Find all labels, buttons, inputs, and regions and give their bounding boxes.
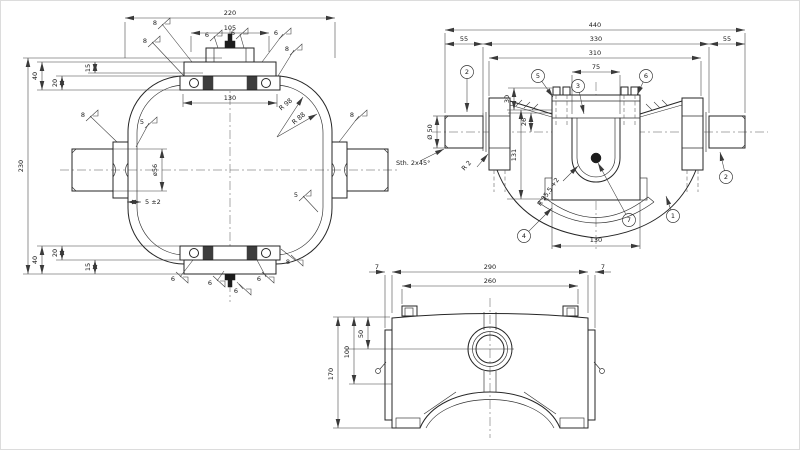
surface-finish-mark: 8 bbox=[350, 110, 367, 121]
finish-value: 8 bbox=[143, 37, 147, 45]
finish-value: 8 bbox=[81, 111, 85, 119]
surface-finish-mark: 6 bbox=[231, 28, 248, 39]
top-bolt-right bbox=[563, 306, 578, 316]
dim-label: R 2 bbox=[460, 159, 473, 172]
surface-finish-mark: 6 bbox=[205, 30, 222, 41]
balloon-number: 6 bbox=[644, 72, 648, 80]
dim-label: R 98 bbox=[277, 97, 294, 113]
balloon-number: 2 bbox=[724, 173, 728, 181]
dim-label: 330 bbox=[590, 35, 602, 43]
dim-label: 30 bbox=[503, 95, 511, 103]
dim-label: 50 bbox=[357, 330, 365, 338]
top-bolt-right-inner bbox=[567, 308, 575, 316]
side-view: 4405533055310751301312630Ø 50Sth. 2x45°R… bbox=[396, 21, 768, 252]
dim-label: 20 bbox=[51, 79, 59, 87]
balloon-number: 1 bbox=[671, 212, 675, 220]
dim-label: Sth. 2x45° bbox=[396, 159, 430, 167]
stud-section bbox=[247, 246, 257, 260]
finish-value: 8 bbox=[286, 258, 290, 266]
stud bbox=[553, 87, 560, 95]
dim-label: 40 bbox=[31, 256, 39, 264]
dim-label: 100 bbox=[343, 346, 351, 358]
finish-leader bbox=[136, 123, 149, 147]
surface-finish-mark: 6 bbox=[274, 28, 291, 39]
front-view: 220105130230401520402015ø565 ±2R 98R 88 … bbox=[17, 9, 400, 302]
finish-leader bbox=[214, 36, 218, 48]
top-bolt-left-inner bbox=[405, 308, 413, 316]
finish-value: 8 bbox=[350, 111, 354, 119]
finish-value: 5 bbox=[140, 118, 144, 126]
finish-leader bbox=[240, 34, 244, 48]
surface-finish-mark: 6 bbox=[208, 276, 225, 287]
side-flange-left bbox=[385, 330, 392, 420]
balloon-number: 5 bbox=[536, 72, 540, 80]
top-bolt-left bbox=[402, 306, 417, 316]
dim-label: 15 bbox=[84, 263, 92, 271]
breather-plug bbox=[225, 41, 235, 48]
bottom-view-anno: 2902607717010050 bbox=[327, 263, 605, 380]
pivot-plug bbox=[591, 153, 601, 163]
dim-label: Ø 50 bbox=[426, 124, 434, 139]
dim-label: 7 bbox=[601, 263, 605, 271]
dim-label: 310 bbox=[589, 49, 601, 57]
stud-section bbox=[247, 76, 257, 90]
finish-value: 5 bbox=[294, 191, 298, 199]
finish-value: 8 bbox=[153, 19, 157, 27]
dim-label: 40 bbox=[31, 72, 39, 80]
finish-value: 6 bbox=[274, 29, 278, 37]
dim-label: 290 bbox=[484, 263, 496, 271]
stud bbox=[563, 87, 570, 95]
surface-finish-mark: 6 bbox=[234, 284, 251, 295]
balloon-callout: 5 bbox=[532, 70, 554, 98]
front-view-labels: 220105130230401520402015ø565 ±2R 98R 88 bbox=[17, 9, 307, 271]
dim-label: 130 bbox=[590, 236, 602, 244]
dim-label: 260 bbox=[484, 277, 496, 285]
bearing-flange-left bbox=[489, 98, 510, 170]
balloon-number: 2 bbox=[465, 68, 469, 76]
dim-label: 55 bbox=[460, 35, 468, 43]
surface-finish-mark: 8 bbox=[285, 44, 302, 55]
dim-label: 75 bbox=[592, 63, 600, 71]
finish-value: 6 bbox=[231, 29, 235, 37]
dim-label: 440 bbox=[589, 21, 601, 29]
surface-finish-mark: 8 bbox=[143, 36, 160, 47]
surface-finish-mark: 5 bbox=[294, 190, 311, 201]
top-cap-flange bbox=[180, 76, 280, 90]
engineering-drawing: 220105130230401520402015ø565 ±2R 98R 88 … bbox=[0, 0, 800, 450]
surface-finish-mark: 8 bbox=[81, 110, 98, 121]
dim-label: 131 bbox=[510, 149, 518, 161]
finish-value: 8 bbox=[285, 45, 289, 53]
saddle-block bbox=[552, 95, 640, 200]
finish-value: 6 bbox=[171, 275, 175, 283]
foot-right bbox=[560, 418, 584, 428]
stud bbox=[621, 87, 628, 95]
balloon-number: 3 bbox=[576, 82, 580, 90]
finish-leader bbox=[152, 42, 184, 76]
dim-label: 130 bbox=[224, 94, 236, 102]
balloon-callout: 2 bbox=[720, 152, 733, 184]
drain-plug bbox=[225, 274, 235, 280]
finish-value: 6 bbox=[205, 31, 209, 39]
dim-label: 230 bbox=[17, 160, 25, 172]
dim-label: 26 bbox=[520, 118, 528, 126]
finish-leader bbox=[90, 116, 117, 142]
side-flange-right bbox=[588, 330, 595, 420]
finish-leader bbox=[162, 24, 192, 62]
dim-label: 7 bbox=[375, 263, 379, 271]
dim-label: 5 ±2 bbox=[145, 198, 161, 206]
grease-fitting-left bbox=[376, 369, 381, 374]
bottom-view: 2902607717010050 bbox=[327, 263, 611, 438]
dim-label: ø56 bbox=[151, 164, 159, 176]
balloon-callout: 2 bbox=[461, 66, 474, 113]
surface-finish-mark: 8 bbox=[153, 18, 170, 29]
dim-label: 170 bbox=[327, 368, 335, 380]
balloon-number: 7 bbox=[627, 216, 631, 224]
dim-label: 55 bbox=[723, 35, 731, 43]
top-cap-plate bbox=[184, 62, 276, 76]
drain-plug-tip bbox=[228, 280, 232, 287]
cap-raised-block bbox=[206, 48, 254, 62]
surface-finish-mark: 8 bbox=[286, 255, 303, 266]
bearing-flange-right bbox=[682, 98, 703, 170]
surface-finish-mark: 5 bbox=[140, 117, 157, 128]
foot-left bbox=[396, 418, 420, 428]
finish-leader bbox=[303, 196, 318, 212]
bottom-view-dims bbox=[333, 272, 611, 428]
balloon-callout: 6 bbox=[637, 70, 653, 96]
dim-label: 20 bbox=[51, 249, 59, 257]
dim-label: 220 bbox=[224, 9, 236, 17]
bottom-cap-flange bbox=[180, 246, 280, 260]
front-view-dims bbox=[23, 18, 335, 274]
grease-fitting-right bbox=[600, 369, 605, 374]
saddle-ear-right bbox=[640, 178, 647, 200]
finish-value: 6 bbox=[257, 275, 261, 283]
finish-value: 6 bbox=[208, 279, 212, 287]
dim-label: 15 bbox=[84, 64, 92, 72]
bottom-view-labels: 2902607717010050 bbox=[327, 263, 605, 380]
page-border bbox=[1, 1, 800, 450]
stud-section bbox=[203, 76, 213, 90]
finish-value: 6 bbox=[234, 287, 238, 295]
stud-section bbox=[203, 246, 213, 260]
balloon-number: 4 bbox=[522, 232, 526, 240]
stud bbox=[631, 87, 638, 95]
